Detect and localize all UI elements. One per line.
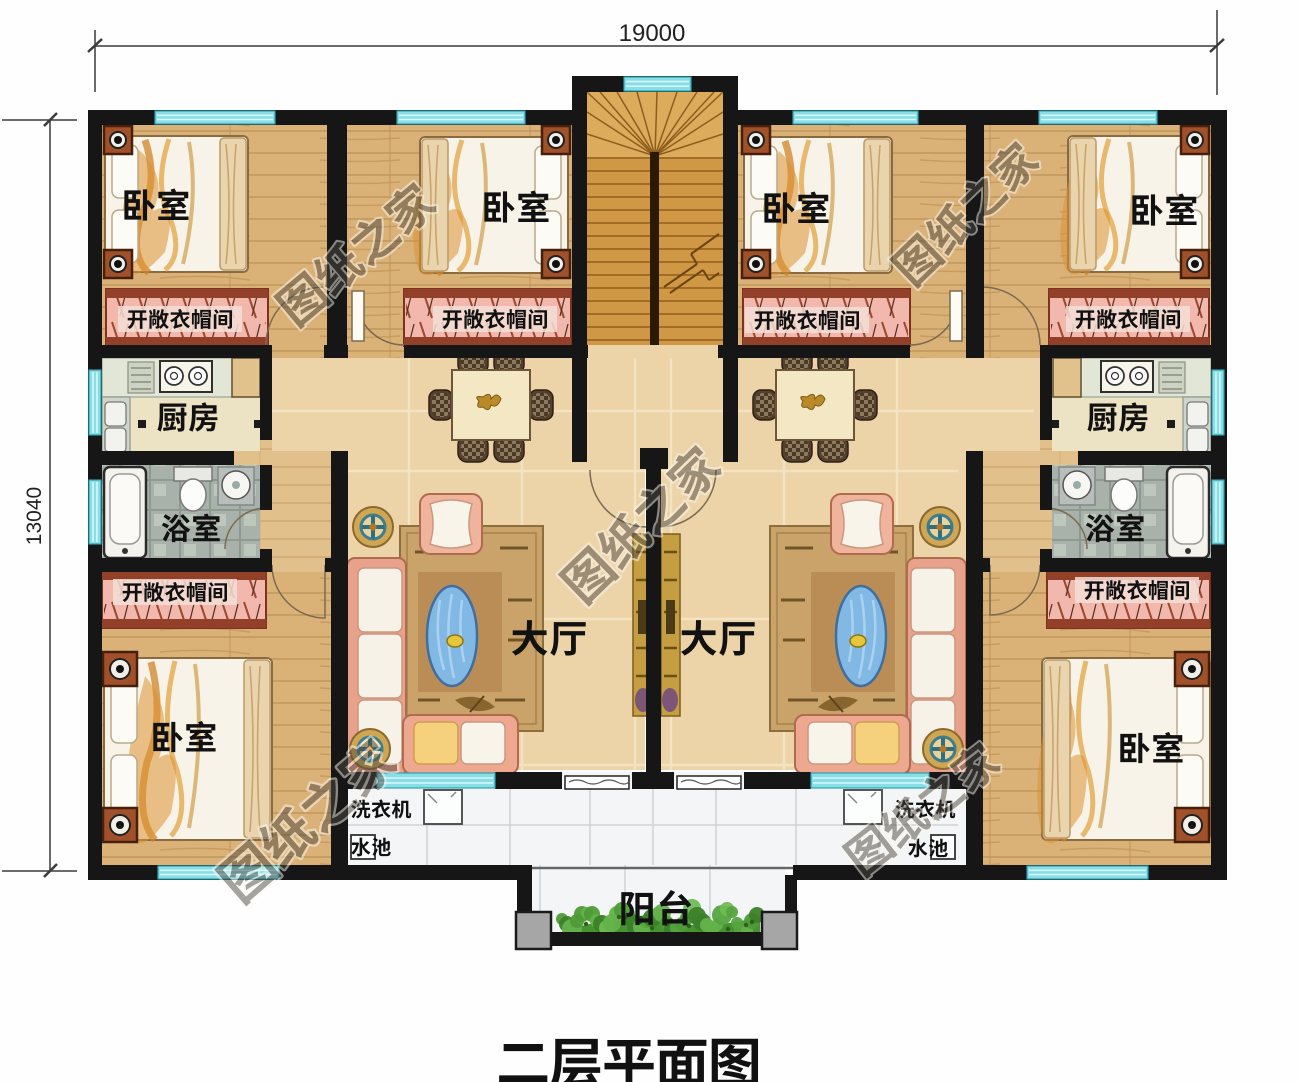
svg-text:13040: 13040	[23, 487, 46, 545]
svg-text:19000: 19000	[619, 20, 686, 47]
